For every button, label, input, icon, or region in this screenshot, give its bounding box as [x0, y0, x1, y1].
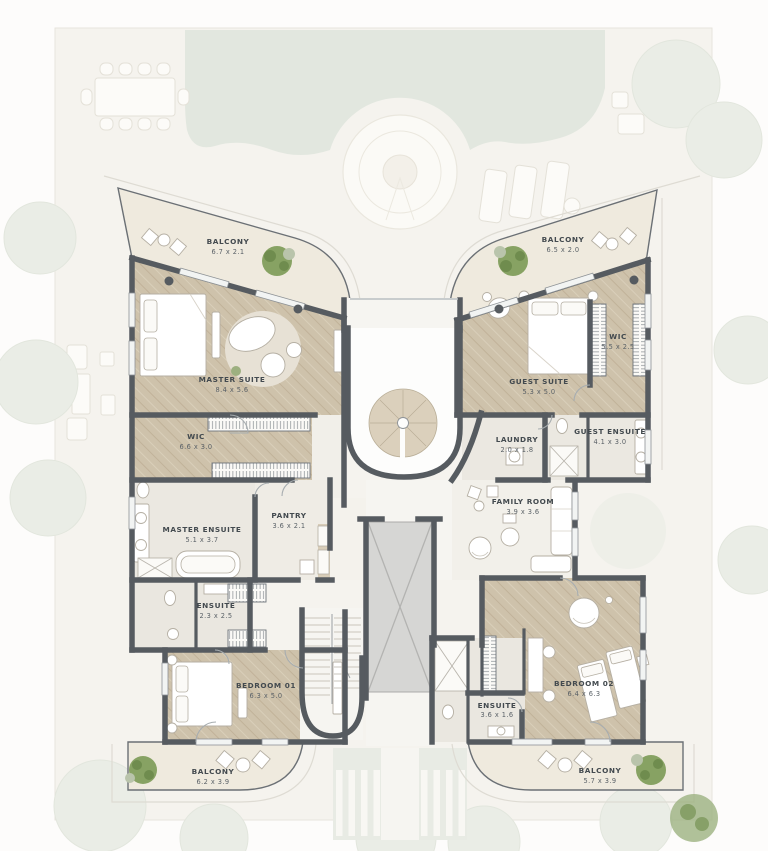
label-bedroom-02: BEDROOM 02 [554, 679, 614, 688]
label-family-room-dims: 3.9 x 3.6 [506, 508, 539, 516]
tree-corner-green [670, 794, 718, 842]
label-pantry: PANTRY [271, 511, 306, 520]
label-bedroom-02-dims: 6.4 x 6.3 [567, 690, 600, 698]
fountain [343, 115, 457, 229]
label-wic-left: WIC [187, 432, 205, 441]
label-master-ensuite: MASTER ENSUITE [163, 525, 242, 534]
label-ensuite-01-dims: 2.3 x 2.5 [199, 612, 232, 620]
label-laundry-dims: 2.0 x 1.8 [500, 446, 533, 454]
label-wic-left-dims: 6.6 x 3.0 [179, 443, 212, 451]
wardrobe [483, 636, 496, 692]
label-ensuite-02: ENSUITE [478, 701, 517, 710]
label-family-room: FAMILY ROOM [492, 497, 554, 506]
label-bedroom-01-dims: 6.3 x 5.0 [249, 692, 282, 700]
wardrobe [228, 630, 266, 647]
label-master-ensuite-dims: 5.1 x 3.7 [185, 536, 218, 544]
label-balcony-tr: BALCONY [542, 235, 585, 244]
label-balcony-br: BALCONY [579, 766, 622, 775]
label-guest-suite: GUEST SUITE [509, 377, 569, 386]
label-ensuite-02-dims: 3.6 x 1.6 [480, 711, 513, 719]
elevator [368, 522, 432, 692]
wardrobe [212, 463, 310, 478]
floor-plan: BALCONY 6.7 x 2.1 MASTER SUITE 8.4 x 5.6… [0, 0, 768, 851]
overhanging-tree [590, 493, 666, 569]
label-master-suite-dims: 8.4 x 5.6 [215, 386, 248, 394]
pergola-path [333, 748, 467, 840]
label-pantry-dims: 3.6 x 2.1 [272, 522, 305, 530]
label-guest-suite-dims: 5.3 x 5.0 [522, 388, 555, 396]
label-balcony-bl: BALCONY [192, 767, 235, 776]
wardrobe [592, 304, 606, 376]
label-balcony-br-dims: 5.7 x 3.9 [583, 777, 616, 785]
label-bedroom-01: BEDROOM 01 [236, 681, 296, 690]
label-balcony-tl: BALCONY [207, 237, 250, 246]
label-balcony-tl-dims: 6.7 x 2.1 [211, 248, 244, 256]
label-laundry: LAUNDRY [496, 435, 539, 444]
label-balcony-bl-dims: 6.2 x 3.9 [196, 778, 229, 786]
label-wic-right-dims: 5.5 x 2.5 [601, 343, 634, 351]
label-ensuite-01: ENSUITE [197, 601, 236, 610]
label-guest-ensuite-dims: 4.1 x 3.0 [593, 438, 626, 446]
label-wic-right: WIC [609, 332, 627, 341]
label-master-suite: MASTER SUITE [199, 375, 266, 384]
wardrobe [208, 416, 310, 431]
label-balcony-tr-dims: 6.5 x 2.0 [546, 246, 579, 254]
label-guest-ensuite: GUEST ENSUITE [574, 427, 646, 436]
wardrobe [228, 584, 266, 602]
